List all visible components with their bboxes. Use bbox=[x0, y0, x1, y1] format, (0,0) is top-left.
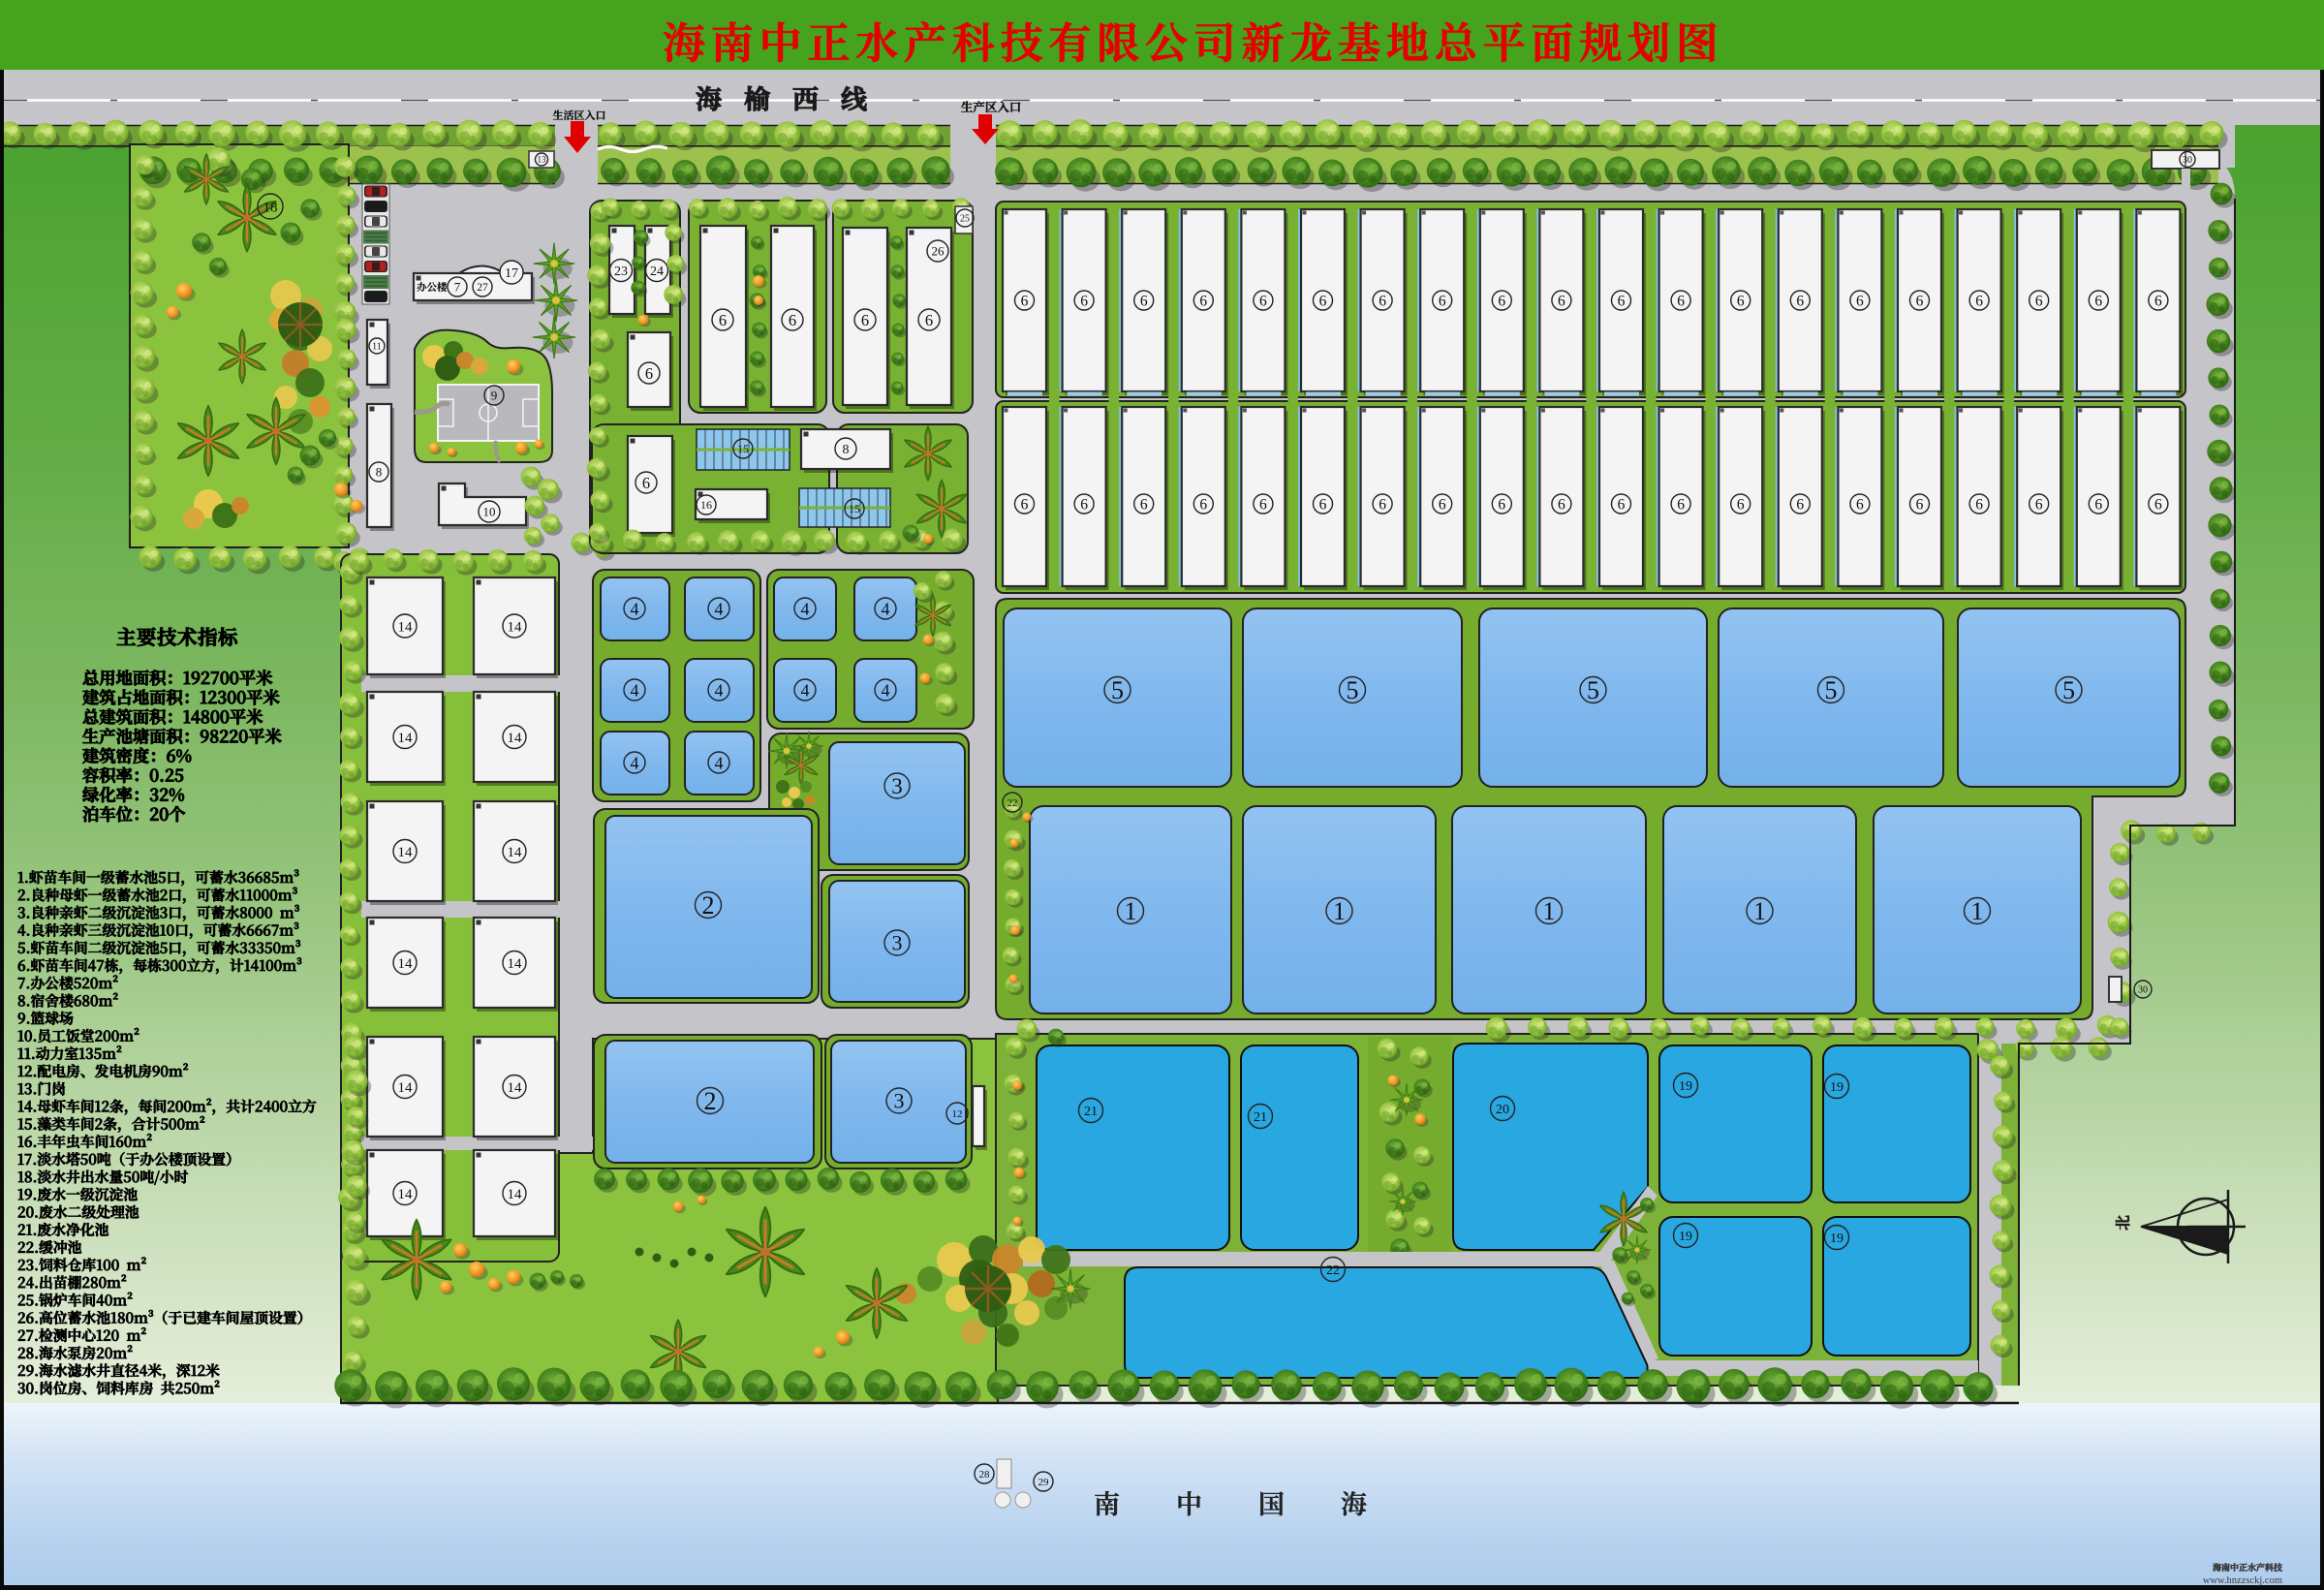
svg-text:6: 6 bbox=[1916, 496, 1924, 513]
svg-text:6: 6 bbox=[1439, 496, 1446, 513]
svg-text:4: 4 bbox=[801, 680, 810, 700]
svg-text:14: 14 bbox=[508, 956, 523, 972]
svg-text:7: 7 bbox=[454, 280, 461, 295]
svg-text:4: 4 bbox=[882, 680, 890, 700]
svg-text:22: 22 bbox=[1007, 797, 1018, 809]
svg-text:6: 6 bbox=[1677, 293, 1685, 309]
svg-text:6: 6 bbox=[2154, 496, 2162, 513]
svg-text:14: 14 bbox=[398, 956, 414, 972]
svg-text:1: 1 bbox=[1543, 897, 1556, 925]
svg-text:6: 6 bbox=[645, 364, 653, 383]
svg-text:13: 13 bbox=[538, 155, 547, 165]
svg-text:24: 24 bbox=[650, 265, 664, 279]
svg-text:6: 6 bbox=[719, 311, 727, 329]
svg-text:19: 19 bbox=[1830, 1080, 1844, 1095]
svg-text:10: 10 bbox=[483, 505, 496, 519]
svg-text:6: 6 bbox=[1558, 293, 1565, 309]
svg-text:15: 15 bbox=[849, 502, 860, 515]
svg-text:6: 6 bbox=[1199, 496, 1207, 513]
svg-text:5: 5 bbox=[1111, 676, 1124, 704]
svg-text:14: 14 bbox=[398, 845, 414, 860]
svg-text:6: 6 bbox=[1259, 293, 1267, 309]
svg-text:18: 18 bbox=[263, 200, 278, 215]
svg-text:21: 21 bbox=[1254, 1110, 1267, 1125]
svg-text:14: 14 bbox=[508, 1080, 523, 1096]
svg-text:4: 4 bbox=[882, 599, 890, 618]
svg-text:6: 6 bbox=[642, 474, 650, 492]
svg-text:21: 21 bbox=[1084, 1105, 1098, 1119]
svg-text:4: 4 bbox=[801, 599, 810, 618]
svg-text:29: 29 bbox=[1038, 1477, 1050, 1488]
svg-text:6: 6 bbox=[2035, 496, 2043, 513]
svg-text:5: 5 bbox=[1347, 676, 1359, 704]
svg-text:23: 23 bbox=[614, 265, 628, 279]
svg-text:6: 6 bbox=[2094, 293, 2102, 309]
svg-text:1: 1 bbox=[1333, 897, 1346, 925]
svg-text:6: 6 bbox=[1319, 293, 1327, 309]
svg-text:6: 6 bbox=[1796, 496, 1804, 513]
svg-text:5: 5 bbox=[1587, 676, 1599, 704]
svg-text:14: 14 bbox=[508, 731, 523, 746]
svg-text:4: 4 bbox=[631, 753, 639, 772]
svg-text:www.hnzzsckj.com: www.hnzzsckj.com bbox=[2203, 1575, 2282, 1586]
svg-text:3: 3 bbox=[892, 931, 903, 955]
svg-text:6: 6 bbox=[1080, 293, 1088, 309]
svg-text:6: 6 bbox=[1021, 496, 1029, 513]
svg-text:6: 6 bbox=[1856, 496, 1864, 513]
svg-text:17: 17 bbox=[505, 266, 518, 281]
svg-text:22: 22 bbox=[1326, 1263, 1340, 1278]
svg-text:6: 6 bbox=[1737, 293, 1745, 309]
svg-text:14: 14 bbox=[398, 1187, 414, 1202]
svg-text:1: 1 bbox=[1125, 897, 1137, 925]
svg-text:6: 6 bbox=[1080, 496, 1088, 513]
svg-text:6: 6 bbox=[1259, 496, 1267, 513]
svg-text:27: 27 bbox=[477, 282, 488, 294]
svg-text:19: 19 bbox=[1679, 1079, 1692, 1094]
svg-text:4: 4 bbox=[715, 680, 724, 700]
svg-text:14: 14 bbox=[508, 1187, 523, 1202]
svg-text:6: 6 bbox=[1379, 496, 1386, 513]
svg-text:6: 6 bbox=[1319, 496, 1327, 513]
svg-text:30: 30 bbox=[2138, 985, 2148, 996]
svg-text:12: 12 bbox=[952, 1108, 963, 1120]
svg-text:6: 6 bbox=[1498, 496, 1505, 513]
svg-text:6: 6 bbox=[1856, 293, 1864, 309]
svg-text:8: 8 bbox=[376, 465, 383, 480]
svg-text:16: 16 bbox=[700, 498, 712, 512]
svg-text:6: 6 bbox=[2154, 293, 2162, 309]
svg-text:5: 5 bbox=[2062, 676, 2075, 704]
svg-text:15: 15 bbox=[737, 442, 749, 455]
svg-text:30: 30 bbox=[2183, 155, 2192, 166]
svg-text:1: 1 bbox=[1971, 897, 1984, 925]
svg-text:6: 6 bbox=[1618, 496, 1626, 513]
svg-text:28: 28 bbox=[979, 1469, 991, 1481]
svg-text:4: 4 bbox=[631, 599, 639, 618]
svg-text:19: 19 bbox=[1830, 1231, 1844, 1246]
svg-text:6: 6 bbox=[1558, 496, 1565, 513]
svg-text:6: 6 bbox=[1140, 496, 1148, 513]
svg-text:6: 6 bbox=[1916, 293, 1924, 309]
svg-text:6: 6 bbox=[1498, 293, 1505, 309]
svg-text:2: 2 bbox=[702, 891, 715, 920]
svg-text:9: 9 bbox=[491, 389, 498, 403]
svg-text:6: 6 bbox=[789, 311, 796, 329]
svg-text:20: 20 bbox=[1496, 1103, 1509, 1117]
svg-text:8: 8 bbox=[843, 443, 850, 457]
svg-text:26: 26 bbox=[932, 244, 945, 259]
svg-text:6: 6 bbox=[1618, 293, 1626, 309]
svg-text:1: 1 bbox=[1753, 897, 1766, 925]
svg-text:6: 6 bbox=[1737, 496, 1745, 513]
svg-text:19: 19 bbox=[1679, 1230, 1692, 1244]
svg-text:11: 11 bbox=[372, 342, 382, 353]
svg-text:6: 6 bbox=[1021, 293, 1029, 309]
svg-text:6: 6 bbox=[1199, 293, 1207, 309]
svg-text:14: 14 bbox=[398, 731, 414, 746]
svg-text:5: 5 bbox=[1825, 676, 1838, 704]
svg-text:6: 6 bbox=[861, 311, 869, 329]
svg-text:6: 6 bbox=[1379, 293, 1386, 309]
svg-text:25: 25 bbox=[960, 214, 970, 225]
svg-text:4: 4 bbox=[631, 680, 639, 700]
svg-text:3: 3 bbox=[891, 774, 903, 798]
svg-text:6: 6 bbox=[1439, 293, 1446, 309]
svg-text:3: 3 bbox=[894, 1089, 905, 1113]
svg-text:6: 6 bbox=[1677, 496, 1685, 513]
svg-text:14: 14 bbox=[398, 1080, 414, 1096]
svg-text:6: 6 bbox=[2094, 496, 2102, 513]
svg-text:6: 6 bbox=[2035, 293, 2043, 309]
svg-text:4: 4 bbox=[715, 753, 724, 772]
svg-text:14: 14 bbox=[398, 619, 414, 635]
svg-text:14: 14 bbox=[508, 619, 523, 635]
svg-text:6: 6 bbox=[925, 311, 933, 329]
svg-text:6: 6 bbox=[1796, 293, 1804, 309]
svg-text:2: 2 bbox=[704, 1087, 717, 1115]
svg-text:4: 4 bbox=[715, 599, 724, 618]
svg-text:14: 14 bbox=[508, 845, 523, 860]
svg-text:6: 6 bbox=[1975, 496, 1983, 513]
svg-text:6: 6 bbox=[1975, 293, 1983, 309]
svg-text:6: 6 bbox=[1140, 293, 1148, 309]
